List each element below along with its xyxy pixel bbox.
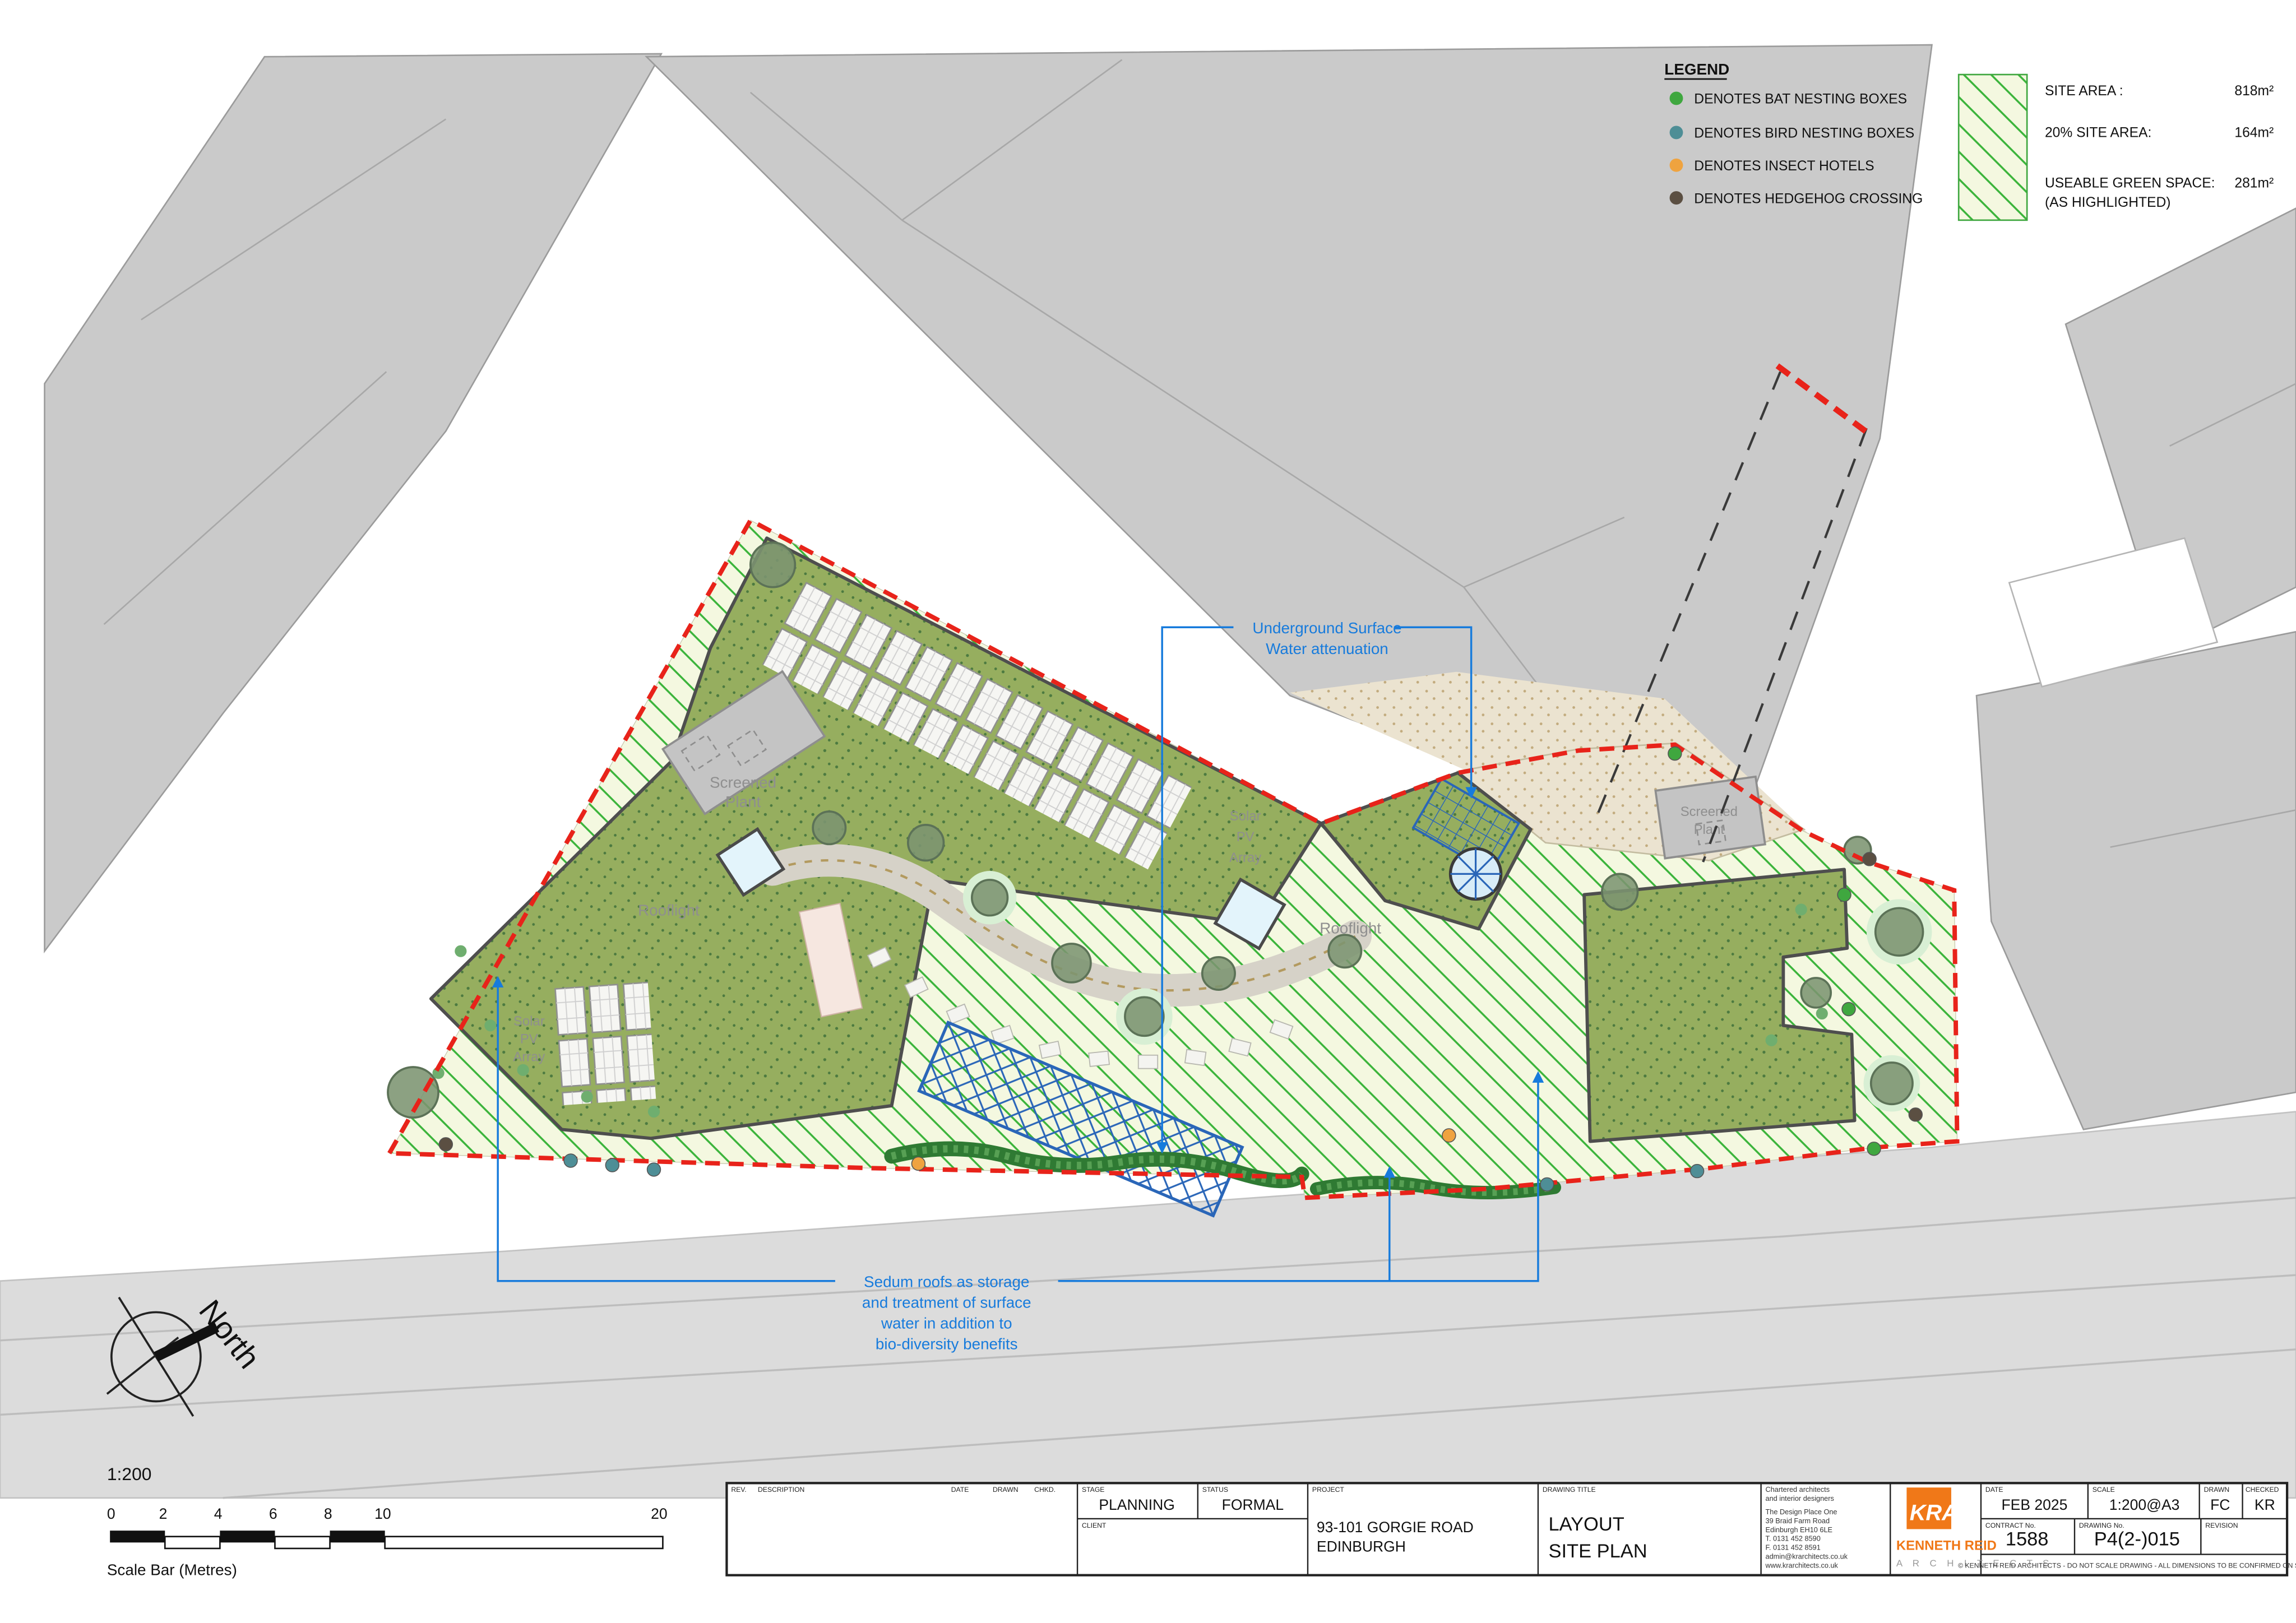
tb-title-line-1: LAYOUT — [1548, 1514, 1624, 1535]
hedgehog-crossing-marker — [1909, 1108, 1922, 1121]
tree — [1876, 908, 1923, 956]
tb-project-line-2: EDINBURGH — [1317, 1538, 1406, 1555]
tb-stage-value: PLANNING — [1099, 1496, 1174, 1513]
scale-bar-caption: Scale Bar (Metres) — [107, 1561, 237, 1579]
screened-plant-east-label-1: Screened — [1681, 804, 1738, 819]
legend-item-hedgehog: DENOTES HEDGEHOG CROSSING — [1694, 191, 1923, 206]
building-north-west — [45, 54, 661, 951]
tb-drawn-header: DRAWN — [993, 1486, 1019, 1494]
bird-nesting-box-marker — [1691, 1165, 1704, 1178]
tb-architect-line-9: www.krarchitects.co.uk — [1765, 1561, 1839, 1569]
tb-architect-line-1: Chartered architects — [1766, 1485, 1830, 1494]
site-area-value: 818m² — [2234, 84, 2274, 99]
attenuation-text-line-2: Water attenuation — [1266, 640, 1388, 657]
tb-architect-line-4: 39 Braid Farm Road — [1766, 1517, 1830, 1525]
tb-drawing-title-header: DRAWING TITLE — [1543, 1486, 1596, 1494]
scale-tick-6: 6 — [269, 1505, 277, 1522]
bird-nesting-box-marker — [605, 1158, 619, 1172]
tb-checked-value: KR — [2255, 1496, 2275, 1513]
bird-nesting-box-dot — [1670, 126, 1683, 140]
tb-drawing-no-value: P4(2-)015 — [2094, 1529, 2180, 1550]
scale-tick-2: 2 — [159, 1505, 168, 1522]
tree — [1801, 978, 1831, 1008]
legend-item-insect: DENOTES INSECT HOTELS — [1694, 159, 1874, 174]
kenneth-reid-name: KENNETH REID — [1896, 1538, 1997, 1554]
tb-status-value: FORMAL — [1222, 1496, 1284, 1513]
tb-copyright: © KENNETH REID ARCHITECTS - DO NOT SCALE… — [1958, 1561, 2296, 1569]
sedum-text-line-1: Sedum roofs as storage — [864, 1273, 1029, 1290]
site-area-label: SITE AREA : — [2045, 84, 2123, 99]
tb-drawn-value: FC — [2210, 1496, 2230, 1513]
legend-item-bat: DENOTES BAT NESTING BOXES — [1694, 92, 1907, 107]
tb-drawn2-header: DRAWN — [2204, 1486, 2230, 1494]
site-area-20-value: 164m² — [2234, 125, 2274, 140]
tb-scale-header: SCALE — [2093, 1486, 2115, 1494]
tb-checked-header: CHECKED — [2246, 1486, 2279, 1494]
scale-ratio: 1:200 — [107, 1464, 152, 1484]
screened-plant-west-label-2: Plant — [725, 793, 761, 810]
tb-client-header: CLIENT — [1082, 1522, 1107, 1529]
insect-hotel-marker — [1442, 1129, 1456, 1142]
screened-plant-east: Screened Plant — [1655, 777, 1765, 859]
hedgehog-crossing-dot — [1670, 191, 1683, 205]
spiral-stair — [1451, 848, 1501, 899]
tb-date-value: FEB 2025 — [2001, 1496, 2067, 1513]
legend-item-bird: DENOTES BIRD NESTING BOXES — [1694, 126, 1914, 141]
sedum-text-line-3: water in addition to — [881, 1315, 1012, 1332]
tb-contract-value: 1588 — [2006, 1529, 2049, 1550]
bird-nesting-box-marker — [564, 1154, 577, 1167]
hedgehog-crossing-marker — [1863, 852, 1876, 866]
tb-scale-value: 1:200@A3 — [2109, 1496, 2180, 1513]
tb-architect-line-2: and interior designers — [1766, 1494, 1834, 1503]
attenuation-text-line-1: Underground Surface — [1252, 619, 1401, 637]
tree — [1052, 944, 1091, 982]
tb-architect-line-5: Edinburgh EH10 6LE — [1766, 1525, 1833, 1534]
scale-tick-20: 20 — [651, 1505, 667, 1522]
tree — [908, 825, 944, 861]
building-east-lower — [1976, 632, 2296, 1129]
tb-architect-line-8: admin@krarchitects.co.uk — [1766, 1552, 1848, 1561]
tb-project-line-1: 93-101 GORGIE ROAD — [1317, 1519, 1474, 1536]
tree — [972, 880, 1008, 916]
bat-nesting-box-marker — [1867, 1142, 1881, 1156]
bat-nesting-box-dot — [1670, 92, 1683, 105]
tree — [1202, 957, 1235, 990]
tb-status-header: STATUS — [1202, 1486, 1228, 1494]
tb-rev-header: REV. — [731, 1486, 746, 1494]
insect-hotel-dot — [1670, 159, 1683, 172]
scale-bar-segments — [110, 1531, 663, 1548]
tree — [1871, 1063, 1913, 1104]
site-area-20-label: 20% SITE AREA: — [2045, 125, 2151, 140]
tb-description-header: DESCRIPTION — [758, 1486, 804, 1494]
scale-tick-4: 4 — [214, 1505, 223, 1522]
scale-tick-8: 8 — [324, 1505, 332, 1522]
tree — [1602, 874, 1638, 910]
solar-array-north-label-3: Array — [1229, 850, 1261, 865]
title-block: REV. DESCRIPTION DATE DRAWN CHKD. STAGE … — [726, 1483, 2296, 1575]
sedum-text-line-4: bio-diversity benefits — [876, 1336, 1018, 1353]
tb-revision-header: REVISION — [2205, 1522, 2238, 1529]
green-space-swatch — [1959, 75, 2027, 220]
solar-array-west-label-2: PV — [520, 1032, 538, 1047]
solar-array-north-label-2: PV — [1237, 829, 1255, 845]
tree — [1328, 935, 1361, 967]
bat-nesting-box-marker — [1842, 1003, 1855, 1016]
legend-title: LEGEND — [1664, 61, 1729, 78]
bird-nesting-box-marker — [1540, 1178, 1554, 1191]
green-space-note: (AS HIGHLIGHTED) — [2045, 195, 2171, 210]
tree — [1125, 997, 1164, 1036]
tb-architect-line-7: F. 0131 452 8591 — [1766, 1543, 1821, 1552]
insect-hotel-marker — [911, 1157, 925, 1170]
tb-architect-line-3: The Design Place One — [1766, 1508, 1837, 1516]
hedgehog-crossing-marker — [439, 1138, 452, 1151]
solar-pv-array-west — [553, 980, 656, 1105]
tree — [813, 811, 845, 844]
tb-stage-header: STAGE — [1082, 1486, 1104, 1494]
solar-array-west-label-3: Array — [513, 1049, 545, 1064]
tree — [751, 542, 795, 587]
scale-tick-10: 10 — [374, 1505, 391, 1522]
green-space-label: USEABLE GREEN SPACE: — [2045, 176, 2215, 191]
screened-plant-west-label-1: Screened — [710, 774, 776, 791]
solar-array-west-label-1: Solar — [513, 1014, 545, 1029]
tb-date2-header: DATE — [1985, 1486, 2003, 1494]
site-plan-canvas: Screened Plant Screened Plant — [0, 0, 2296, 1623]
scale-tick-0: 0 — [107, 1505, 115, 1522]
rooflight-west-label: Rooflight — [638, 902, 700, 919]
tb-chkd-header: CHKD. — [1034, 1486, 1056, 1494]
kra-monogram-text: KRA — [1910, 1501, 1958, 1525]
tb-title-line-2: SITE PLAN — [1548, 1541, 1647, 1562]
bird-nesting-box-marker — [647, 1163, 661, 1176]
tb-project-header: PROJECT — [1312, 1486, 1344, 1494]
screened-plant-east-label-2: Plant — [1694, 822, 1725, 837]
tb-architect-line-6: T. 0131 452 8590 — [1766, 1534, 1821, 1543]
tb-date-header: DATE — [951, 1486, 969, 1494]
solar-array-north-label-1: Solar — [1230, 809, 1261, 824]
rooflight-east-label: Rooflight — [1320, 919, 1381, 936]
sedum-text-line-2: and treatment of surface — [862, 1293, 1031, 1311]
bat-nesting-box-marker — [1837, 888, 1851, 902]
green-space-value: 281m² — [2234, 176, 2274, 191]
bat-nesting-box-marker — [1668, 747, 1682, 761]
